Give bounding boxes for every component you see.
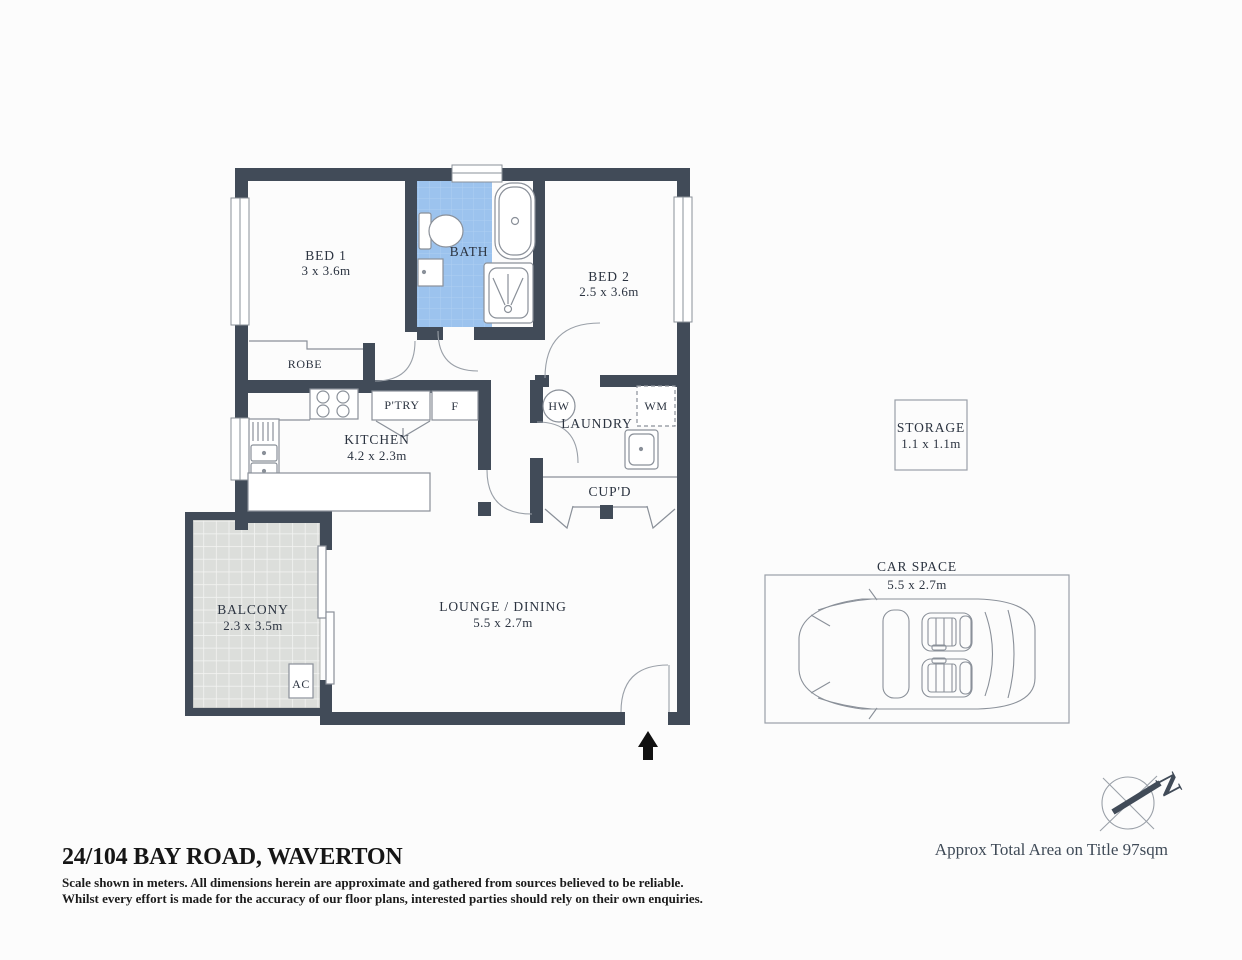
kitchen-label: KITCHEN bbox=[344, 432, 410, 447]
kitchen-dims: 4.2 x 2.3m bbox=[347, 448, 407, 463]
car-space-label: CAR SPACE bbox=[877, 559, 957, 574]
robe-label: ROBE bbox=[288, 357, 322, 371]
washing-machine-label: WM bbox=[644, 399, 667, 413]
pantry-label: P'TRY bbox=[384, 398, 419, 412]
total-area-note: Approx Total Area on Title 97sqm bbox=[935, 840, 1168, 860]
car-icon bbox=[799, 589, 1035, 719]
lounge-dims: 5.5 x 2.7m bbox=[473, 615, 533, 630]
bathtub-icon bbox=[495, 183, 535, 259]
north-compass-icon: N bbox=[1100, 768, 1188, 831]
laundry-tub-icon bbox=[625, 430, 658, 469]
disclaimer-line2: Whilst every effort is made for the accu… bbox=[62, 891, 703, 907]
bath-label: BATH bbox=[450, 244, 489, 259]
window-bed1 bbox=[231, 198, 249, 325]
car-space-box bbox=[765, 575, 1069, 723]
bed1-label: BED 1 bbox=[305, 248, 347, 263]
robe-shelf-line bbox=[249, 341, 363, 349]
storage-dims: 1.1 x 1.1m bbox=[901, 436, 961, 451]
window-kitchen bbox=[231, 418, 249, 480]
floorplan-svg: N BED 1 3 x 3.6m BATH BED 2 2.5 x 3.6m R… bbox=[0, 0, 1242, 960]
fridge-label: F bbox=[451, 399, 458, 413]
window-bed2 bbox=[674, 197, 692, 322]
storage-box bbox=[895, 400, 967, 470]
bed2-door-arc bbox=[545, 323, 600, 378]
stove-icon bbox=[310, 389, 358, 419]
floorplan-page: N BED 1 3 x 3.6m BATH BED 2 2.5 x 3.6m R… bbox=[0, 0, 1242, 960]
bed1-door-arc bbox=[375, 341, 415, 381]
compass-north-label: N bbox=[1149, 768, 1188, 803]
entry-door-arc bbox=[621, 665, 668, 712]
storage-label: STORAGE bbox=[897, 420, 965, 435]
car-space-dims: 5.5 x 2.7m bbox=[887, 577, 947, 592]
disclaimer-line1: Scale shown in meters. All dimensions he… bbox=[62, 875, 684, 891]
cupboard-label: CUP'D bbox=[589, 484, 632, 499]
bath-door-arc bbox=[438, 331, 478, 371]
bed2-label: BED 2 bbox=[588, 269, 630, 284]
hot-water-label: HW bbox=[548, 399, 569, 413]
kitchen-bench bbox=[248, 473, 430, 511]
balcony-dims: 2.3 x 3.5m bbox=[223, 618, 283, 633]
shower-icon bbox=[484, 263, 533, 323]
kitchen-sink-icon bbox=[249, 419, 279, 480]
bed2-dims: 2.5 x 3.6m bbox=[579, 284, 639, 299]
lounge-label: LOUNGE / DINING bbox=[439, 599, 566, 614]
entry-arrow-icon bbox=[638, 731, 658, 760]
balcony-label: BALCONY bbox=[217, 602, 289, 617]
ac-label: AC bbox=[292, 677, 310, 691]
bed1-dims: 3 x 3.6m bbox=[301, 263, 350, 278]
laundry-label: LAUNDRY bbox=[561, 416, 633, 431]
kitchen-door-arc bbox=[487, 470, 532, 514]
window-bath bbox=[452, 165, 502, 182]
property-title: 24/104 BAY ROAD, WAVERTON bbox=[62, 844, 402, 871]
bath-sink-icon bbox=[418, 259, 443, 286]
